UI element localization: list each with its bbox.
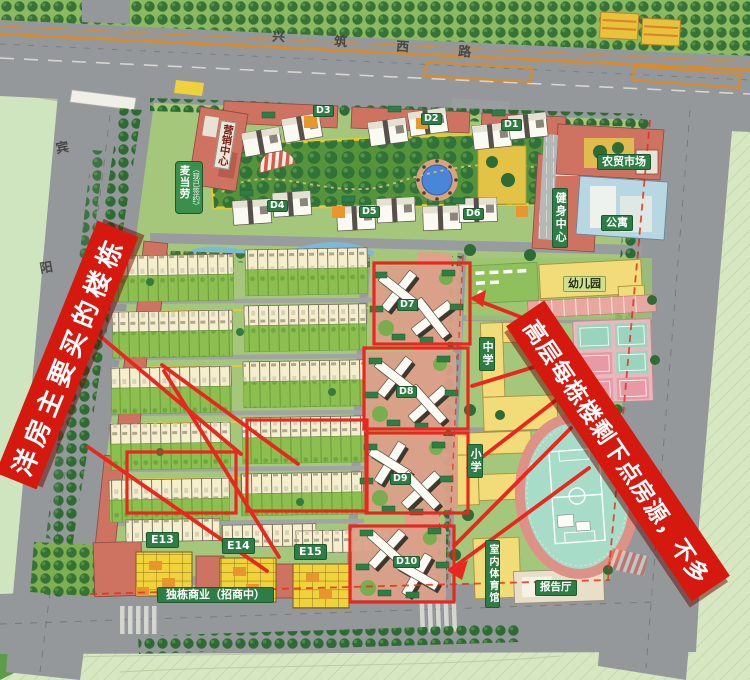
badge-d7: D7: [397, 299, 418, 311]
badge-d6: D6: [463, 208, 484, 220]
badge-d4: D4: [267, 200, 288, 212]
site-plan-map[interactable]: 兴 筑 西 路 宾 阳 营销中心 （现已签约） 麦当劳 农贸市场 公寓 健身中心…: [0, 0, 750, 680]
label-indoor-gym: 室内体育馆: [485, 540, 500, 608]
road-name-top-char-3: 路: [458, 46, 472, 61]
label-street-commercial: 独栋商业（招商中）: [157, 587, 274, 603]
badge-d5: D5: [359, 206, 380, 218]
signed-note-label: （现已签约）: [192, 165, 200, 210]
tenant-label: 麦当劳: [178, 165, 190, 210]
road-name-top-char-2: 西: [396, 41, 410, 56]
road-name-top-char-1: 筑: [334, 36, 348, 51]
label-fitness-center: 健身中心: [552, 188, 568, 248]
badge-d3: D3: [313, 105, 334, 117]
badge-d8: D8: [396, 386, 417, 398]
label-farmers-market: 农贸市场: [597, 154, 651, 170]
mcdonalds-sign: （现已签约） 麦当劳: [175, 161, 203, 214]
badge-d1: D1: [501, 119, 522, 131]
badge-d2: D2: [421, 113, 442, 125]
label-lecture-hall: 报告厅: [535, 580, 577, 596]
road-name-left-char-0: 宾: [55, 141, 70, 157]
road-name-left-char-1: 阳: [39, 261, 54, 277]
badge-d9: D9: [390, 473, 411, 485]
badge-e13: E13: [146, 532, 179, 548]
badge-e14: E14: [222, 538, 255, 554]
badge-d10: D10: [393, 556, 420, 568]
site-plan-artwork: [0, 0, 750, 680]
label-middle-school: 中学: [479, 337, 495, 371]
label-kindergarten: 幼儿园: [563, 276, 606, 292]
road-name-top-char-0: 兴: [272, 31, 286, 46]
label-primary-school: 小学: [467, 444, 483, 478]
label-apartment: 公寓: [601, 215, 633, 231]
badge-e15: E15: [294, 544, 327, 560]
